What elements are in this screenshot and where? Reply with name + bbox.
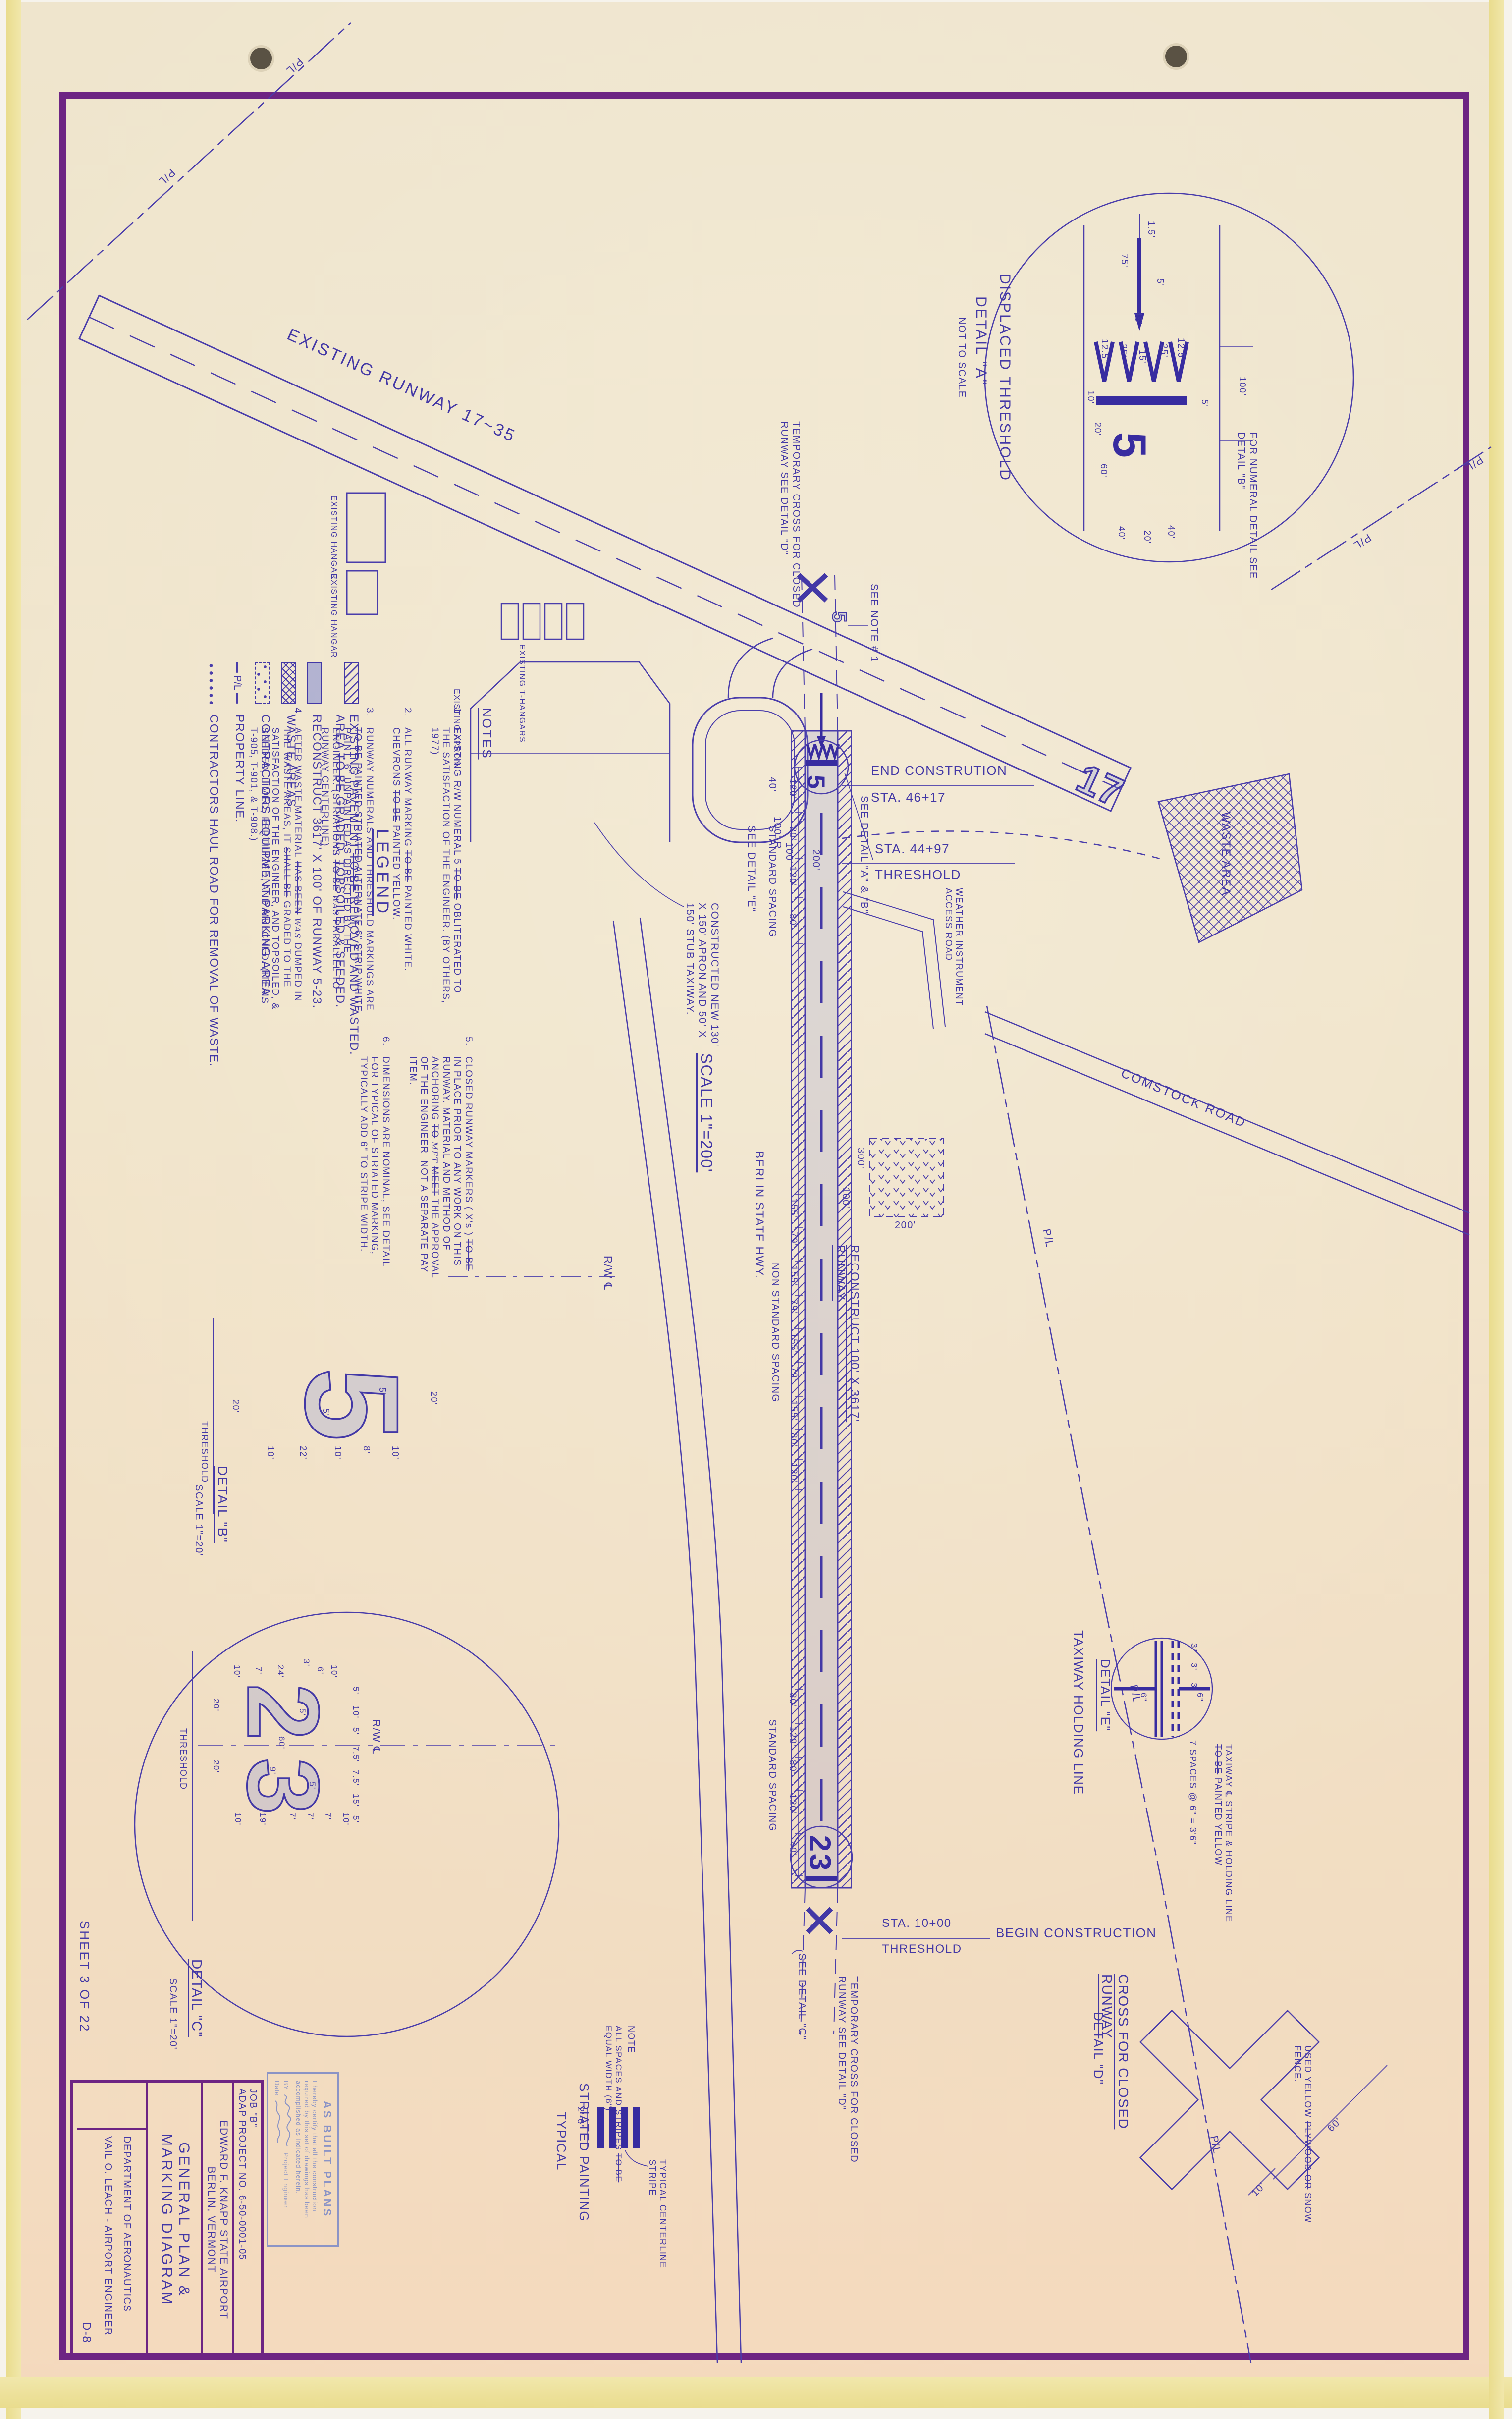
- see-detail-c-label: SEE DETAIL "C": [790, 1953, 808, 2072]
- dim-label: 9': [267, 1767, 277, 1784]
- dim-label: 155': [787, 1265, 799, 1295]
- stamp-by-label: BY: [282, 2081, 290, 2090]
- dim-label: 19': [257, 1813, 268, 1832]
- note-text: RUNWAY NUMERALS AND THRESHOLD MARKINGS A…: [319, 727, 375, 1015]
- dim-label: 15': [350, 1794, 361, 1814]
- sheet-title-line1: GENERAL PLAN &: [175, 2089, 193, 2351]
- notes-column-1: NOTES 1.EXISTING R/W NUMERAL 5 TO BE OBL…: [341, 708, 505, 1015]
- notes: NOTES 1.EXISTING R/W NUMERAL 5 TO BE OBL…: [341, 708, 505, 1304]
- dim-label: 8': [360, 1446, 372, 1466]
- dim-label: 120': [786, 1726, 798, 1756]
- dim-label: 7': [286, 1813, 297, 1829]
- dim-label: 3': [1188, 1663, 1199, 1681]
- dim-label: 2'-6": [574, 2107, 586, 2144]
- note-text: AFTER WASTE MATERIAL HAS BEEN WAS DUMPED…: [247, 727, 303, 1015]
- dim-label: 7': [322, 1813, 333, 1829]
- detail-e-title: TAXIWAY HOLDING LINE: [1066, 1630, 1086, 1799]
- dim-label: 10': [264, 1446, 275, 1468]
- sheet-number: SHEET 3 OF 22: [72, 1921, 92, 2050]
- solid-swatch: [307, 662, 322, 704]
- dim-label: 7.5': [350, 1746, 361, 1768]
- rw-centerline-label: R/W ℄: [361, 1719, 382, 1781]
- sta-10-00-label: STA. 10+00: [882, 1917, 991, 1935]
- dim-label: 10': [340, 1813, 351, 1834]
- reconstruct-runway-label: RECONSTRUCT 100' X 3617' RUNWAY: [842, 1245, 861, 1478]
- threshold-label-bottom: THRESHOLD: [882, 1942, 991, 1961]
- centerline-stripe-label: TYPICAL CENTERLINE STRIPE: [645, 2159, 668, 2303]
- dim-label: 60': [275, 1736, 286, 1758]
- dim-label: 3': [300, 1659, 311, 1677]
- threshold-label: THRESHOLD: [196, 1421, 210, 1510]
- dim-label: 120': [787, 1463, 799, 1492]
- dim-label: 20': [1141, 530, 1152, 552]
- dim-label: 20': [210, 1699, 221, 1720]
- dim-label: 45': [1133, 311, 1143, 333]
- dim-label: 12.5': [1175, 338, 1186, 366]
- dim-label: 120': [786, 779, 798, 809]
- dim-label: 155': [787, 1400, 799, 1430]
- dim-label: 5': [350, 1687, 361, 1704]
- detail-c-scale: SCALE 1"=20': [162, 1978, 178, 2077]
- stamp-date-label: Date: [273, 2081, 281, 2096]
- detail-a-numeral: 5: [1113, 419, 1156, 471]
- detail-a-title: DISPLACED THRESHOLD: [991, 274, 1014, 482]
- temporary-cross-note-bottom: TEMPORARY CROSS FOR CLOSED RUNWAY SEE DE…: [814, 1976, 859, 2194]
- sheet-title-line2: MARKING DIAGRAM: [158, 2089, 175, 2351]
- dim-label: 20': [427, 1391, 439, 1416]
- detail-b-numeral: 5: [275, 1368, 424, 1437]
- dim-label: 10': [231, 1665, 242, 1687]
- dim-label: 80': [787, 1433, 799, 1463]
- detail-b-title: DETAIL "B": [208, 1466, 231, 1585]
- dim-label: 300': [853, 1148, 866, 1182]
- dim-label: 75': [1119, 254, 1130, 275]
- striated-note-title: NOTE: [623, 2026, 636, 2060]
- dim-label: 10': [232, 1813, 243, 1834]
- dim-label: 7': [304, 1813, 315, 1829]
- dim-label: 20': [229, 1399, 241, 1424]
- striated-note: ALL SPACES AND STRIPES TO BE EQUAL WIDTH…: [603, 2026, 623, 2194]
- detail-a-subtitle: DETAIL "A": [968, 296, 990, 460]
- legend-item-label: CONTRACTORS HAUL ROAD FOR REMOVAL OF WAS…: [207, 715, 220, 1067]
- dim-label: 20': [210, 1760, 221, 1782]
- dim-label: 6": [1137, 1693, 1148, 1710]
- dots-swatch: [204, 662, 218, 704]
- note-text: CLOSED RUNWAY MARKERS ( X's ) TO BE IN P…: [407, 1056, 473, 1284]
- see-detail-e-label: SEE DETAIL "E": [739, 825, 757, 949]
- dim-label: 22': [296, 1446, 308, 1468]
- dim-label: 5': [376, 1387, 387, 1404]
- dim-label: 12.5': [1099, 339, 1110, 367]
- dim-label: 10': [350, 1705, 361, 1725]
- dim-label: 40': [766, 777, 778, 804]
- vees-swatch: [255, 662, 270, 704]
- detail-e-subtitle: DETAIL "E": [1093, 1659, 1113, 1773]
- project-number: ADAP PROJECT NO. 6-50-0001-05: [236, 2089, 247, 2351]
- dim-label: 155': [787, 1333, 799, 1363]
- waste-area-label: WASTE AREA: [1213, 812, 1233, 921]
- drawing-number: D-8: [75, 2322, 93, 2359]
- begin-construction-label: BEGIN CONSTRUCTION: [996, 1925, 1159, 1945]
- existing-numeral-5: 5: [833, 611, 850, 633]
- hatch-swatch: [344, 662, 359, 704]
- dim-label: 7': [253, 1667, 264, 1685]
- runway-23-numeral: 23: [804, 1830, 837, 1877]
- stamp-title: AS BUILT PLANS: [321, 2081, 333, 2238]
- detail-e-paint-note: TAXIWAY ℄ STRIPE & HOLDING LINE TO BE PA…: [1203, 1744, 1234, 1923]
- standard-spacing-label: STANDARD SPACING: [764, 1719, 778, 1838]
- dim-label: 40': [1165, 525, 1176, 547]
- sta-46-17-label: STA. 46+17: [871, 790, 1039, 810]
- dim-label: 79': [787, 1367, 799, 1396]
- detail-c-numeral-2: 2: [222, 1684, 339, 1736]
- airport-name: EDWARD F. KNAPP STATE AIRPORT: [217, 2089, 229, 2351]
- dim-label: 120': [786, 866, 798, 896]
- stamp-body: I hereby certify that all the constructi…: [294, 2081, 319, 2238]
- detail-a-scale-note: NOT TO SCALE: [952, 317, 967, 441]
- dim-label: 10': [1085, 390, 1096, 412]
- dim-label: 10': [388, 1446, 400, 1468]
- department-name: DEPARTMENT OF AERONAUTICS: [120, 2136, 132, 2351]
- notes-title: NOTES: [479, 708, 494, 1015]
- dim-label: 5': [350, 1727, 361, 1744]
- see-detail-ab-label: SEE DETAIL "A" & "B": [850, 796, 870, 920]
- existing-t-hangars-label: EXISTING T-HANGARS: [511, 644, 526, 758]
- dim-label: 15': [1136, 350, 1147, 370]
- berlin-hwy-label: BERLIN STATE HWY.: [749, 1151, 766, 1279]
- dim-label: 7.5': [350, 1770, 361, 1792]
- blueprint-sheet: EXISTING RUNWAY 17~35 17 TEMPORARY CROSS…: [0, 0, 1512, 2419]
- dim-label: 79': [787, 1232, 799, 1262]
- runway-width-dim: 100': [839, 1187, 851, 1217]
- dim-label: 60': [1098, 464, 1109, 486]
- signature-scribble: [282, 2094, 291, 2148]
- note-text: EXISTING R/W NUMERAL 5 TO BE OBLITERATED…: [429, 727, 462, 1015]
- dim-label: 10': [328, 1665, 339, 1687]
- detail-c-numeral-3: 3: [222, 1758, 339, 1811]
- standard-spacing-label: STANDARD SPACING: [764, 825, 778, 944]
- existing-hangar-label: EXISTING HANGAR: [323, 574, 338, 668]
- dim-label: 80': [786, 914, 798, 943]
- temporary-cross-note-top: TEMPORARY CROSS FOR CLOSED RUNWAY SEE DE…: [757, 421, 802, 639]
- detail-d-subtitle: DETAIL "D": [1086, 2012, 1106, 2141]
- dim-label: 5': [319, 1408, 331, 1425]
- detail-a-note: FOR NUMERAL DETAIL SEE DETAIL "B": [1224, 432, 1258, 601]
- dim-label: 3": [1188, 1643, 1199, 1661]
- dim-label: 40': [1116, 526, 1127, 548]
- detail-c-title: DETAIL "C": [182, 1959, 205, 2083]
- dim-label: 80': [786, 826, 798, 856]
- title-block-job-row: JOB "B" ADAP PROJECT NO. 6-50-0001-05: [232, 2083, 261, 2357]
- airport-city: BERLIN, VERMONT: [205, 2089, 217, 2351]
- detail-d-note: USED YELLOW PLYWOOD OR SNOW FENCE.: [1292, 2045, 1313, 2224]
- rw-centerline-label: R/W ℄: [593, 1256, 614, 1317]
- dim-label: 25': [1118, 344, 1129, 366]
- sta-44-97-label: STA. 44+97: [875, 841, 1024, 861]
- dim-label: 5': [1154, 278, 1165, 295]
- scale-label: SCALE 1"=200': [689, 1030, 715, 1196]
- weather-road-label: WEATHER INSTRUMENT ACCESS ROAD: [942, 888, 964, 1037]
- dim-label: 80': [786, 1760, 798, 1790]
- dim-label: 5': [1199, 399, 1210, 416]
- dim-label: 100': [1237, 377, 1247, 404]
- legend-item: CONTRACTORS HAUL ROAD FOR REMOVAL OF WAS…: [204, 662, 220, 1083]
- date-scribble: [273, 2100, 281, 2144]
- crosshatch-swatch: [281, 662, 296, 704]
- dim-label: 20': [1092, 422, 1103, 444]
- notes-column-2: 5.CLOSED RUNWAY MARKERS ( X's ) TO BE IN…: [341, 1037, 505, 1284]
- dim-label: 40': [786, 1841, 798, 1871]
- non-standard-spacing-label: NON STANDARD SPACING: [767, 1263, 781, 1426]
- dim-label: 24': [274, 1665, 285, 1687]
- note-text: ALL RUNWAY MARKING TO BE PAINTED WHITE. …: [390, 727, 413, 1015]
- dim-label: 25': [1158, 344, 1169, 366]
- as-built-stamp: AS BUILT PLANS I hereby certify that all…: [267, 2072, 339, 2247]
- runway-5-numeral: 5: [809, 769, 830, 795]
- detail-e-spaces-note: 7 SPACES @ 6" = 3'6": [1185, 1740, 1198, 1849]
- striated-title2: TYPICAL: [552, 2112, 569, 2206]
- job-label: JOB "B": [247, 2089, 258, 2351]
- title-block: JOB "B" ADAP PROJECT NO. 6-50-0001-05 ED…: [70, 2080, 264, 2360]
- engineer-name: VAIL O. LEACH - AIRPORT ENGINEER: [102, 2136, 114, 2351]
- threshold-label-top: THRESHOLD: [875, 867, 1024, 887]
- dim-label: 79': [787, 1299, 799, 1329]
- dim-label: 200': [895, 1220, 934, 1235]
- detail-d-title: CROSS FOR CLOSED RUNWAY: [1109, 1974, 1132, 2187]
- dim-label: 5': [350, 1815, 361, 1832]
- dim-label: 6": [1194, 1693, 1205, 1710]
- threshold-label: THRESHOLD: [174, 1728, 188, 1822]
- dim-label: 1.5': [1145, 221, 1156, 245]
- see-note-1-label: SEE NOTE # 1: [863, 584, 880, 698]
- title-block-airport-row: EDWARD F. KNAPP STATE AIRPORT BERLIN, VE…: [201, 2083, 232, 2357]
- dim-label: 6': [314, 1667, 325, 1685]
- end-construction-label: END CONSTRUTION: [871, 763, 1039, 783]
- dim-label: 5': [306, 1782, 317, 1799]
- dim-label: 10': [331, 1446, 343, 1468]
- stamp-engineer-label: Project Engineer: [282, 2152, 290, 2208]
- dim-label: 5': [296, 1708, 307, 1725]
- dim-label: 200': [810, 849, 821, 882]
- note-text: DIMENSIONS ARE NOMINAL, SEE DETAIL FOR T…: [358, 1056, 391, 1284]
- title-block-sheet-title-row: GENERAL PLAN & MARKING DIAGRAM: [146, 2083, 201, 2357]
- property-line-swatch: P/L: [229, 662, 244, 704]
- dim-label: 80': [786, 1693, 798, 1722]
- dim-label: 120': [786, 1794, 798, 1823]
- dim-label: 155': [787, 1198, 799, 1228]
